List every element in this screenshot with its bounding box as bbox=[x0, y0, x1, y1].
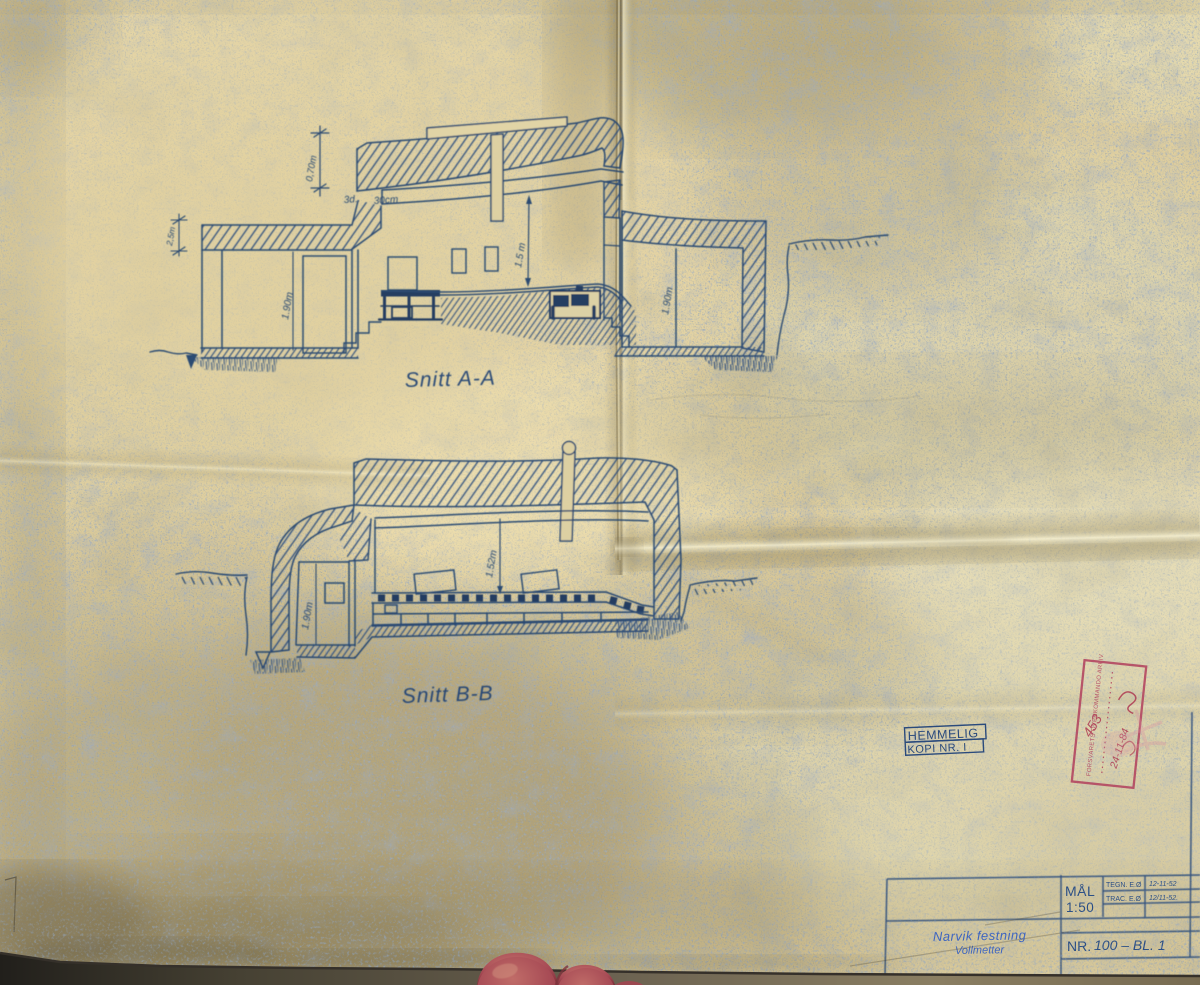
svg-text:Snitt A-A: Snitt A-A bbox=[405, 367, 497, 392]
svg-text:Snitt B-B: Snitt B-B bbox=[401, 682, 494, 708]
svg-text:3d.: 3d. bbox=[343, 194, 358, 206]
